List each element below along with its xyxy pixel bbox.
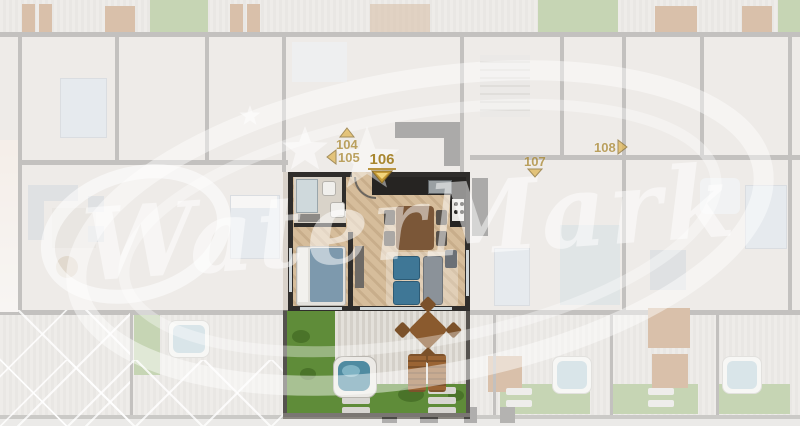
terrace-fence	[283, 413, 470, 417]
stepping-stone	[506, 388, 532, 395]
sun-lounger	[230, 4, 243, 32]
sun-lounger	[22, 4, 35, 32]
unit-marker-106-selected[interactable]: 106	[368, 152, 396, 184]
kitchen-counter	[395, 122, 460, 138]
patio-table	[655, 6, 697, 32]
unit-marker-104[interactable]: 104	[336, 127, 358, 151]
arrow-down-icon	[371, 170, 393, 184]
garden-patch	[150, 0, 208, 34]
burner	[454, 210, 458, 214]
unit-106-lawn	[287, 311, 335, 415]
toilet	[322, 181, 336, 196]
unit-marker-label: 107	[524, 155, 546, 168]
wall	[205, 37, 209, 163]
bush	[300, 368, 316, 380]
arrow-down-icon	[527, 168, 543, 178]
sun-lounger	[39, 4, 52, 32]
washer	[298, 214, 320, 222]
wall	[18, 37, 22, 310]
hot-tub	[552, 356, 592, 394]
armchair	[88, 196, 104, 212]
unit-marker-label: 108	[594, 141, 616, 154]
paver	[500, 407, 515, 423]
sun-lounger	[408, 354, 426, 392]
unit-marker-108[interactable]: 108	[594, 139, 628, 155]
corridor-wall	[0, 160, 288, 165]
arrow-left-icon	[326, 149, 337, 165]
stepping-stone	[506, 400, 532, 407]
wall	[622, 37, 626, 310]
sofa-seat	[393, 256, 420, 280]
sun-lounger	[742, 6, 772, 34]
terrace-divider	[610, 310, 613, 416]
tv-cabinet	[355, 246, 364, 288]
garden-patch	[538, 0, 618, 34]
kitchen-counter	[472, 178, 488, 236]
wall	[294, 223, 346, 227]
window	[300, 307, 342, 310]
wall	[700, 37, 704, 157]
bed	[60, 78, 107, 138]
unit-marker-label: 105	[338, 151, 360, 164]
unit-marker-105[interactable]: 105	[326, 149, 360, 165]
wall	[560, 37, 564, 157]
window	[466, 250, 469, 296]
bathroom-glass	[560, 225, 620, 305]
bed	[745, 185, 787, 249]
bed-duvet	[310, 248, 343, 302]
patio-table	[648, 308, 690, 348]
garden-patch	[778, 0, 800, 34]
patio-table	[105, 6, 135, 32]
hot-tub	[168, 320, 210, 358]
corridor-wall	[470, 155, 800, 160]
terrace-divider	[283, 311, 287, 415]
sun-lounger	[247, 4, 260, 32]
staircase	[480, 55, 530, 117]
side-table	[445, 250, 457, 268]
bed-pillows	[231, 196, 277, 208]
armchair	[88, 226, 104, 242]
window	[289, 248, 292, 292]
wall	[282, 37, 286, 172]
wall	[348, 232, 353, 311]
stepping-stone	[648, 388, 674, 395]
round-table	[56, 256, 78, 278]
hot-tub	[722, 356, 762, 394]
bathroom-tiles	[292, 42, 347, 82]
wall	[788, 37, 792, 310]
site-edge	[0, 140, 18, 312]
burner	[460, 202, 464, 206]
bush	[292, 330, 310, 343]
bathtub	[700, 178, 740, 214]
sofa	[650, 250, 686, 290]
sofa	[28, 185, 44, 240]
plaza	[0, 360, 285, 426]
terrace-divider	[466, 311, 470, 415]
unit-marker-label: 106	[369, 152, 394, 167]
patio-table	[370, 4, 430, 32]
dining-table	[396, 206, 434, 250]
bed-pillows	[298, 248, 308, 302]
arrow-right-icon	[617, 139, 628, 155]
unit-marker-107[interactable]: 107	[524, 155, 546, 178]
burner	[460, 210, 464, 214]
stepping-stone	[428, 397, 456, 404]
dining-chair	[436, 210, 447, 225]
sofa-seat	[393, 281, 420, 305]
wall	[115, 37, 119, 163]
hot-tub-swirl	[342, 365, 360, 377]
sun-lounger	[652, 354, 688, 388]
dining-chair	[384, 231, 395, 246]
wall	[460, 37, 464, 172]
bed	[494, 248, 530, 306]
shower	[296, 179, 318, 213]
sink	[330, 202, 345, 218]
floorplan-viewer: WaterMark 104 105 106 107 108	[0, 0, 800, 426]
terrace-divider	[493, 310, 496, 416]
stepping-stone	[342, 397, 370, 404]
terrace-divider	[716, 310, 719, 416]
sun-lounger	[428, 354, 446, 392]
stepping-stone	[648, 400, 674, 407]
kitchen-sink	[428, 180, 452, 194]
burner	[454, 202, 458, 206]
dining-chair	[436, 231, 447, 246]
kitchen-appliance	[444, 138, 460, 166]
dining-chair	[384, 210, 395, 225]
